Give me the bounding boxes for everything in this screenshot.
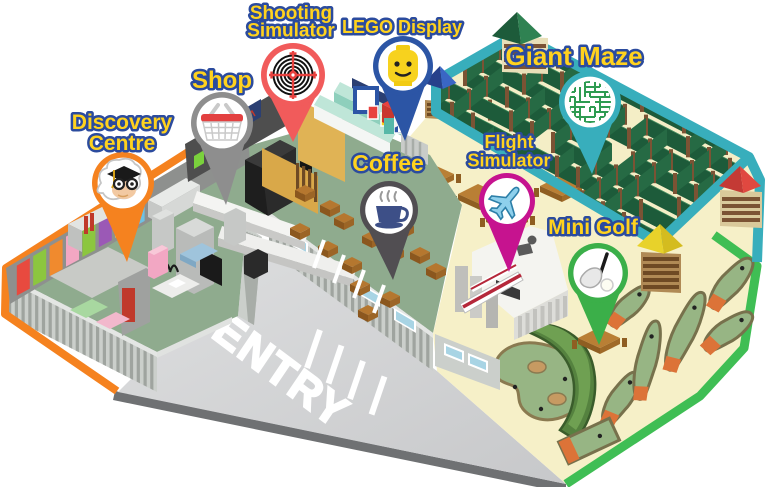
svg-text:Shop: Shop [192, 67, 252, 94]
svg-text:Discovery: Discovery [72, 111, 173, 134]
svg-text:Giant Maze: Giant Maze [505, 41, 642, 71]
svg-text:Mini Golf: Mini Golf [548, 216, 639, 239]
svg-text:Coffee: Coffee [352, 150, 424, 176]
svg-text:Simulator: Simulator [467, 151, 550, 171]
svg-text:Centre: Centre [89, 132, 156, 155]
svg-text:LEGO Display: LEGO Display [342, 17, 462, 37]
svg-text:Simulator: Simulator [247, 21, 335, 42]
svg-text:Flight: Flight [485, 132, 534, 152]
